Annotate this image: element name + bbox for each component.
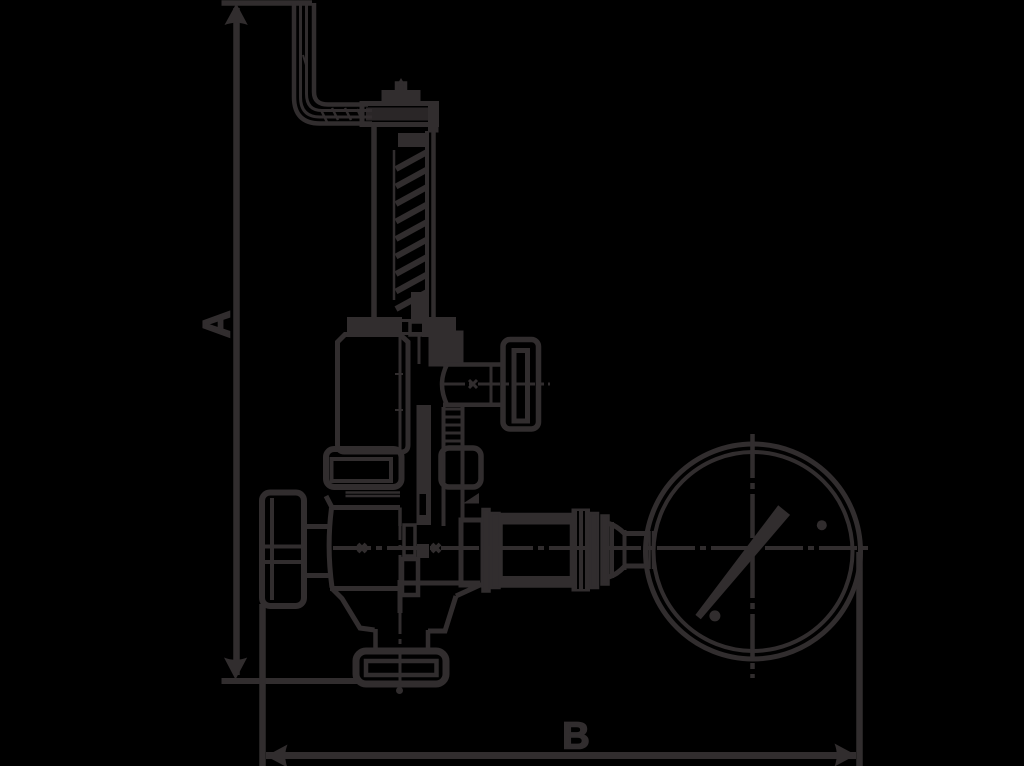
svg-text:B: B [562,716,589,758]
svg-text:A: A [197,311,239,338]
